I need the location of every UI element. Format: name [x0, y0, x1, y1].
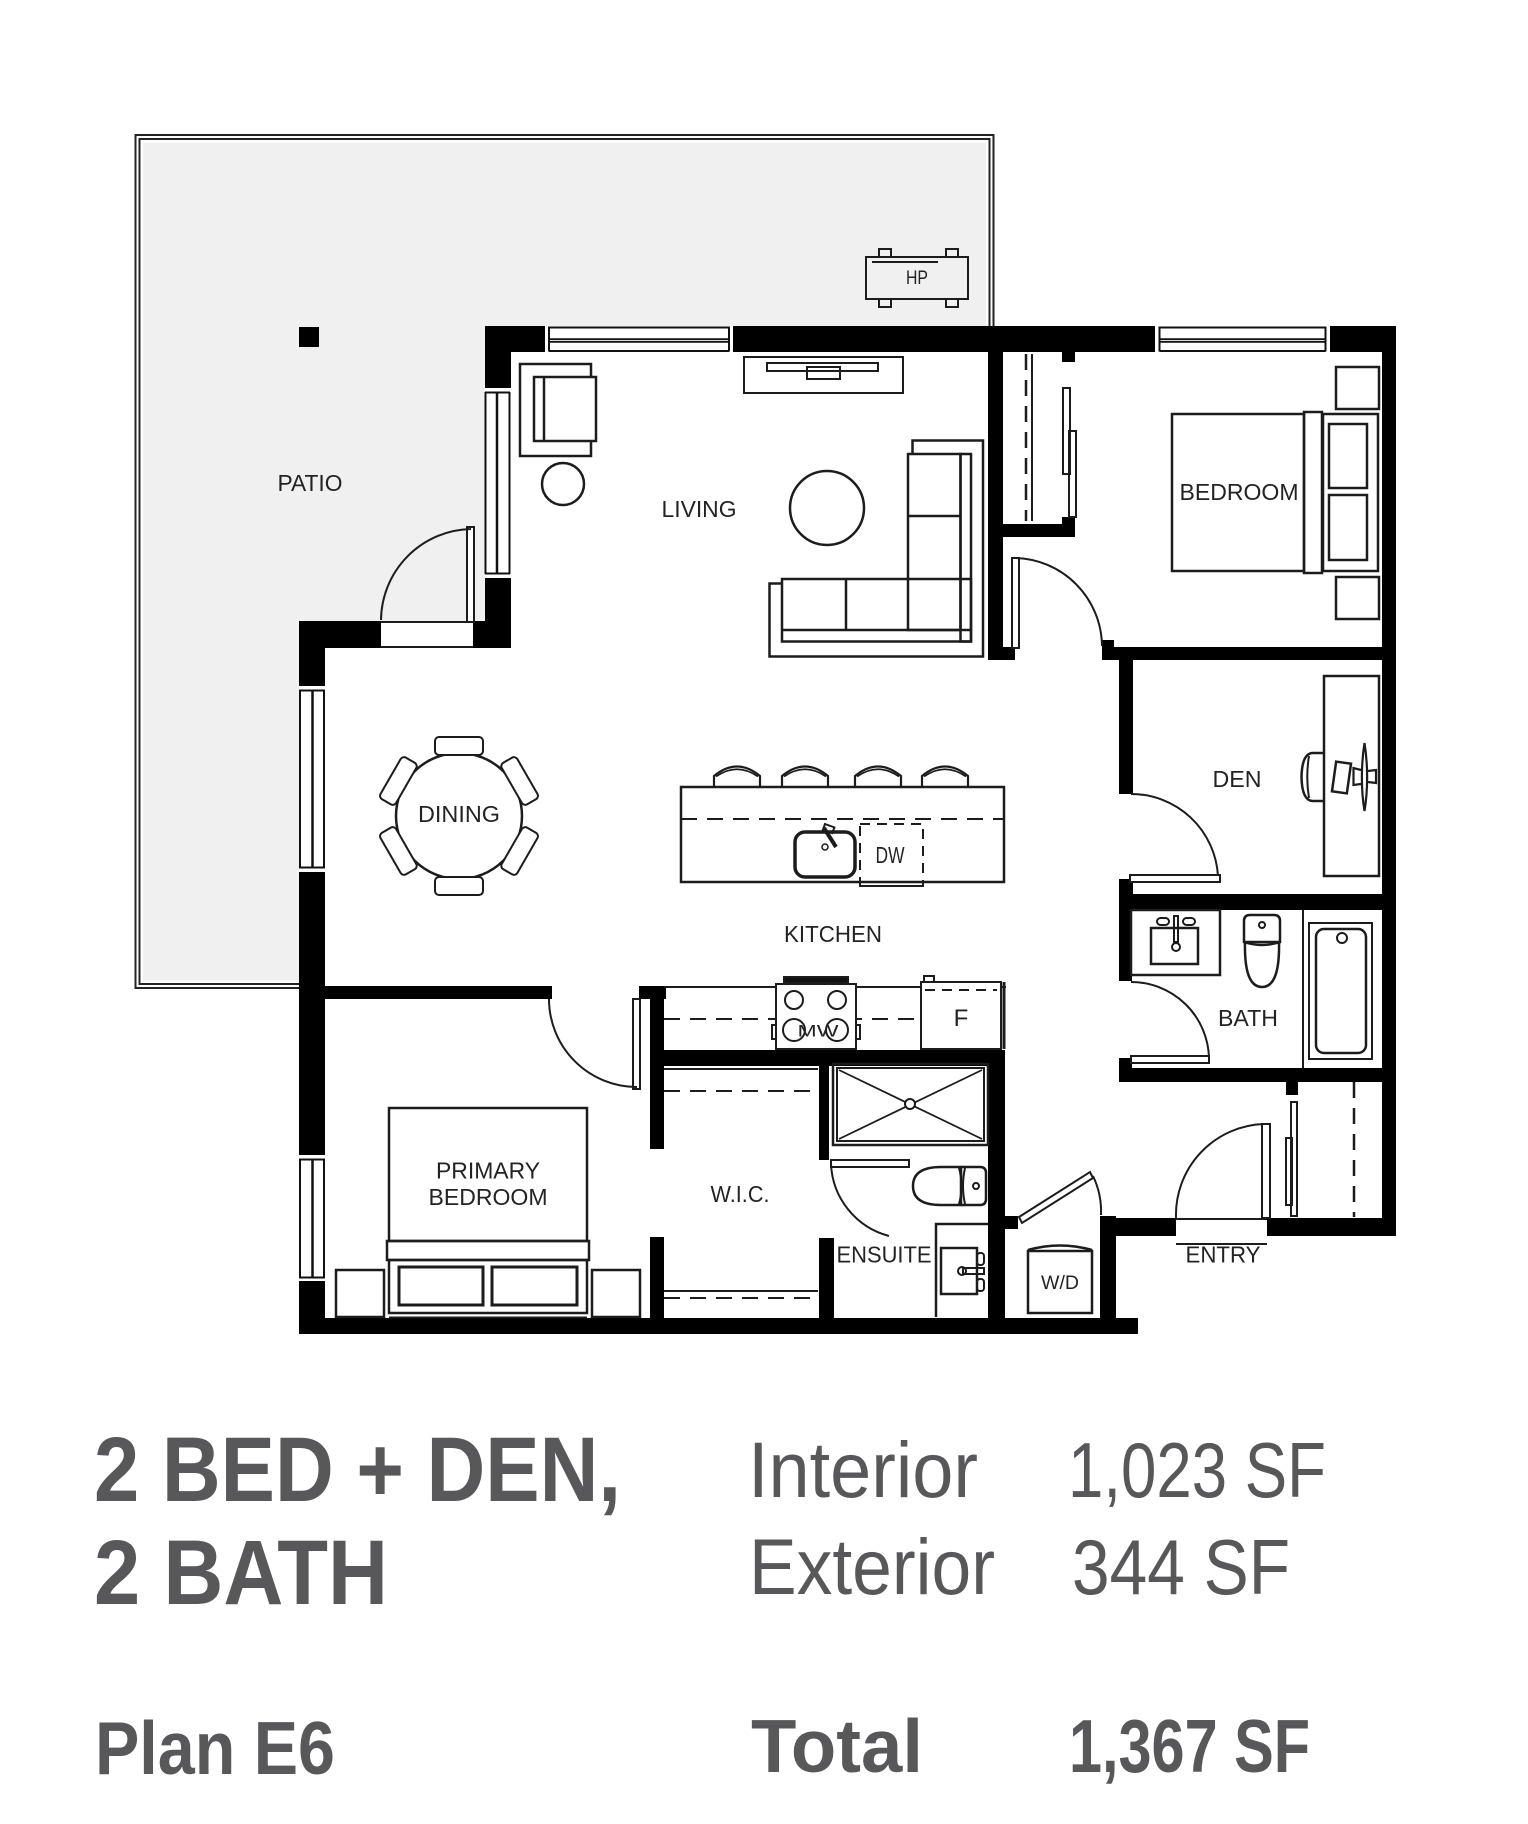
svg-text:LIVING: LIVING — [662, 496, 737, 522]
svg-text:BATH: BATH — [1218, 1005, 1278, 1031]
svg-text:2 BED + DEN,: 2 BED + DEN, — [94, 1419, 621, 1521]
svg-text:Interior: Interior — [748, 1425, 978, 1514]
svg-text:W/D: W/D — [1041, 1273, 1079, 1294]
svg-text:PATIO: PATIO — [278, 470, 343, 496]
svg-text:F: F — [954, 1005, 969, 1032]
svg-text:1,023 SF: 1,023 SF — [1068, 1426, 1326, 1514]
svg-text:BEDROOM: BEDROOM — [429, 1184, 548, 1210]
svg-text:DINING: DINING — [418, 801, 500, 827]
svg-text:344 SF: 344 SF — [1072, 1523, 1290, 1611]
svg-text:Plan E6: Plan E6 — [95, 1706, 335, 1790]
svg-text:Total: Total — [751, 1704, 923, 1788]
svg-text:1,367 SF: 1,367 SF — [1069, 1704, 1310, 1788]
svg-text:PRIMARY: PRIMARY — [436, 1158, 540, 1184]
svg-text:DEN: DEN — [1213, 766, 1262, 792]
svg-text:ENTRY: ENTRY — [1186, 1242, 1261, 1268]
svg-text:Exterior: Exterior — [749, 1522, 995, 1611]
svg-text:KITCHEN: KITCHEN — [784, 921, 882, 947]
svg-text:W.I.C.: W.I.C. — [711, 1181, 770, 1207]
svg-text:MW: MW — [798, 1022, 839, 1041]
svg-text:BEDROOM: BEDROOM — [1180, 479, 1299, 505]
svg-text:DW: DW — [876, 842, 905, 868]
svg-text:2 BATH: 2 BATH — [94, 1522, 388, 1624]
svg-text:ENSUITE: ENSUITE — [837, 1242, 932, 1268]
svg-text:HP: HP — [906, 268, 928, 289]
